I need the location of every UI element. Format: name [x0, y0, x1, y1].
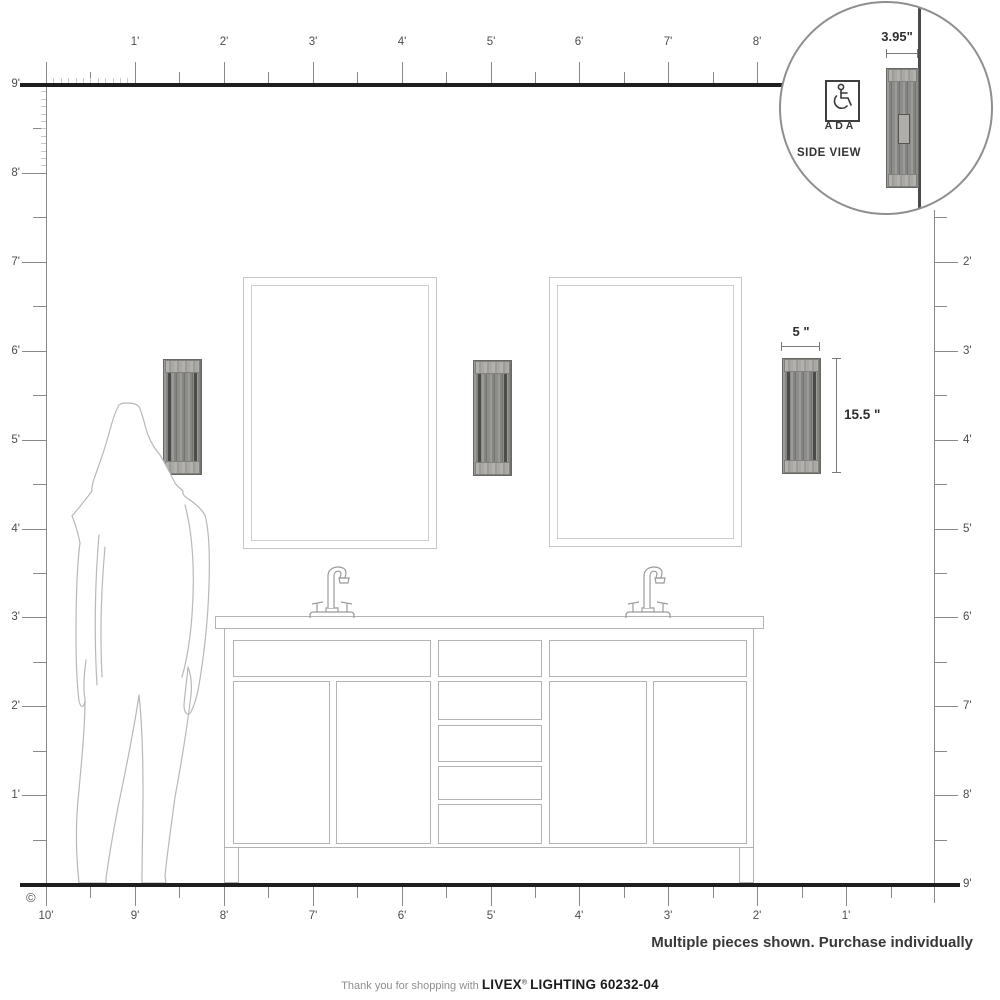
ruler-tick	[757, 887, 758, 906]
width-dimension-line	[781, 346, 820, 347]
ruler-tick	[935, 395, 947, 396]
side-view-label: SIDE VIEW	[797, 147, 861, 159]
ruler-label: 7'	[0, 255, 20, 269]
sconce-bottom-cap	[475, 462, 510, 475]
width-dimension-tick-right	[819, 342, 820, 351]
ruler-tick	[713, 887, 714, 898]
wall-sconce-3	[782, 358, 821, 474]
vanity-drawer-4	[438, 804, 542, 844]
ruler-label: 8'	[209, 909, 239, 923]
copyright-symbol: ©	[26, 890, 36, 905]
ruler-label: 7'	[653, 35, 683, 49]
ruler-label: 2'	[209, 35, 239, 49]
ruler-tick	[33, 662, 46, 663]
ruler-tick	[935, 217, 947, 218]
vanity-drawer-3	[438, 766, 542, 800]
ruler-tick	[22, 440, 46, 441]
ruler-tick	[446, 887, 447, 898]
ruler-tick	[22, 529, 46, 530]
vanity-door-4	[653, 681, 747, 844]
footer-tagline: Thank you for shopping with LIVEX® LIGHT…	[0, 977, 1000, 992]
ada-label: ADA	[813, 120, 868, 132]
ruler-tick	[268, 887, 269, 898]
ruler-tick	[33, 840, 46, 841]
vanity-drawer-2	[438, 725, 542, 762]
ruler-label: 6'	[387, 909, 417, 923]
ruler-label: 4'	[387, 35, 417, 49]
ruler-label: 9'	[120, 909, 150, 923]
ada-wheelchair-icon	[828, 82, 855, 116]
sconce-right-bar	[813, 372, 816, 460]
ruler-tick	[313, 887, 314, 906]
ruler-label: 10'	[31, 909, 61, 923]
ruler-tick	[33, 395, 46, 396]
vanity-drawer-1	[438, 681, 542, 720]
ruler-label: 6'	[564, 35, 594, 49]
ruler-label: 2'	[742, 909, 772, 923]
sconce-side-top-cap	[888, 69, 917, 82]
sconce-top-cap	[784, 359, 819, 372]
sconce-side-handle	[898, 114, 910, 144]
ruler-tick	[935, 306, 947, 307]
ruler-label: 9'	[0, 77, 20, 91]
ruler-label: 6'	[0, 344, 20, 358]
vanity-leg-right	[739, 847, 754, 883]
right-ruler-line	[934, 210, 935, 903]
ruler-tick	[33, 306, 46, 307]
left-ruler-line	[46, 62, 47, 906]
ruler-tick	[757, 62, 758, 84]
ruler-tick	[491, 62, 492, 84]
ruler-tick	[579, 62, 580, 84]
ruler-label: 7'	[963, 699, 993, 713]
ruler-tick	[579, 887, 580, 906]
ruler-label: 5'	[0, 433, 20, 447]
ruler-label: 5'	[476, 35, 506, 49]
ruler-tick	[935, 751, 947, 752]
ruler-tick	[935, 706, 958, 707]
floor-line	[20, 883, 960, 887]
inset-depth-dimension: 3.95"	[867, 29, 927, 44]
ruler-tick	[33, 573, 46, 574]
depth-dimension-line	[886, 53, 918, 54]
ruler-label: 3'	[653, 909, 683, 923]
ruler-label: 7'	[298, 909, 328, 923]
ruler-tick	[935, 573, 947, 574]
purchase-note: Multiple pieces shown. Purchase individu…	[651, 934, 973, 951]
ada-badge	[825, 80, 860, 122]
ruler-tick	[535, 887, 536, 898]
ruler-tick	[22, 795, 46, 796]
ruler-tick	[935, 351, 958, 352]
vanity-false-front-left	[233, 640, 431, 677]
ruler-tick	[935, 617, 958, 618]
vanity-false-front-mid	[438, 640, 542, 677]
ruler-tick	[33, 484, 46, 485]
sconce-left-bar	[478, 374, 481, 462]
ruler-tick	[668, 62, 669, 84]
ruler-tick	[935, 840, 947, 841]
ruler-tick	[668, 887, 669, 906]
ruler-tick	[935, 795, 958, 796]
wall-sconce-2	[473, 360, 512, 476]
ruler-tick	[22, 262, 46, 263]
scale-figure-woman	[55, 395, 220, 890]
sconce-side-view	[886, 68, 919, 188]
height-dimension-tick-top	[832, 358, 841, 359]
ruler-tick	[624, 887, 625, 898]
ruler-label: 3'	[0, 610, 20, 624]
ruler-tick	[22, 617, 46, 618]
depth-dimension-tick-right	[917, 49, 918, 58]
mirror-right-inner-frame	[557, 285, 734, 539]
ruler-tick	[224, 62, 225, 84]
ruler-tick	[22, 173, 46, 174]
vanity-door-1	[233, 681, 330, 844]
sconce-right-bar	[504, 374, 507, 462]
ruler-label: 4'	[564, 909, 594, 923]
sconce-height-dimension: 15.5 "	[844, 407, 880, 422]
product-dimension-diagram: 1'2'3'4'5'6'7'8'9'8'7'6'5'4'3'2'1'2'3'4'…	[0, 0, 1000, 1000]
registered-mark: ®	[522, 979, 527, 986]
ruler-tick	[33, 751, 46, 752]
ruler-tick	[935, 484, 947, 485]
ruler-tick	[135, 62, 136, 84]
footer-prefix: Thank you for shopping with	[341, 980, 479, 992]
side-view-inset: 3.95" ADA SIDE VIEW	[779, 1, 993, 215]
ruler-label: 1'	[120, 35, 150, 49]
sconce-width-dimension: 5 "	[782, 324, 820, 339]
width-dimension-tick-left	[781, 342, 782, 351]
ruler-tick	[935, 662, 947, 663]
faucet-icon-left	[300, 556, 364, 619]
ruler-label: 1'	[0, 788, 20, 802]
ruler-tick	[802, 887, 803, 898]
mirror-left-inner-frame	[251, 285, 429, 541]
sconce-top-cap	[165, 360, 200, 373]
vanity-false-front-right	[549, 640, 747, 677]
product-number: LIGHTING 60232-04	[530, 977, 659, 992]
ruler-label: 4'	[963, 433, 993, 447]
sconce-bottom-cap	[784, 460, 819, 473]
ruler-tick	[22, 351, 46, 352]
ruler-label: 1'	[831, 909, 861, 923]
sconce-top-cap	[475, 361, 510, 374]
sconce-side-bottom-cap	[888, 174, 917, 187]
ruler-tick	[402, 62, 403, 84]
ruler-tick	[357, 887, 358, 898]
vanity-leg-left	[224, 847, 239, 883]
height-dimension-line	[836, 358, 837, 473]
ceiling-line	[20, 83, 782, 87]
ruler-label: 5'	[476, 909, 506, 923]
mirror-left	[243, 277, 437, 549]
ruler-label: 6'	[963, 610, 993, 624]
ruler-label: 2'	[0, 699, 20, 713]
ruler-tick	[891, 887, 892, 898]
ruler-tick	[224, 887, 225, 906]
ruler-label: 9'	[963, 877, 993, 891]
ruler-tick	[22, 706, 46, 707]
sconce-left-bar	[787, 372, 790, 460]
ruler-label: 8'	[963, 788, 993, 802]
ruler-label: 3'	[298, 35, 328, 49]
faucet-icon-right	[616, 556, 680, 619]
ruler-label: 8'	[742, 35, 772, 49]
ruler-tick	[935, 262, 958, 263]
mirror-right	[549, 277, 742, 547]
ruler-label: 3'	[963, 344, 993, 358]
ruler-label: 4'	[0, 522, 20, 536]
ruler-tick	[935, 440, 958, 441]
ruler-tick	[313, 62, 314, 84]
ruler-tick	[935, 529, 958, 530]
ruler-tick	[491, 887, 492, 906]
vanity-door-3	[549, 681, 647, 844]
vanity-door-2	[336, 681, 431, 844]
depth-dimension-tick-left	[886, 49, 887, 58]
ruler-tick	[846, 887, 847, 906]
height-dimension-tick-bottom	[832, 472, 841, 473]
ruler-tick	[402, 887, 403, 906]
ruler-label: 8'	[0, 166, 20, 180]
ruler-tick	[33, 217, 46, 218]
ruler-label: 5'	[963, 522, 993, 536]
brand-name: LIVEX	[482, 977, 522, 992]
ruler-label: 2'	[963, 255, 993, 269]
